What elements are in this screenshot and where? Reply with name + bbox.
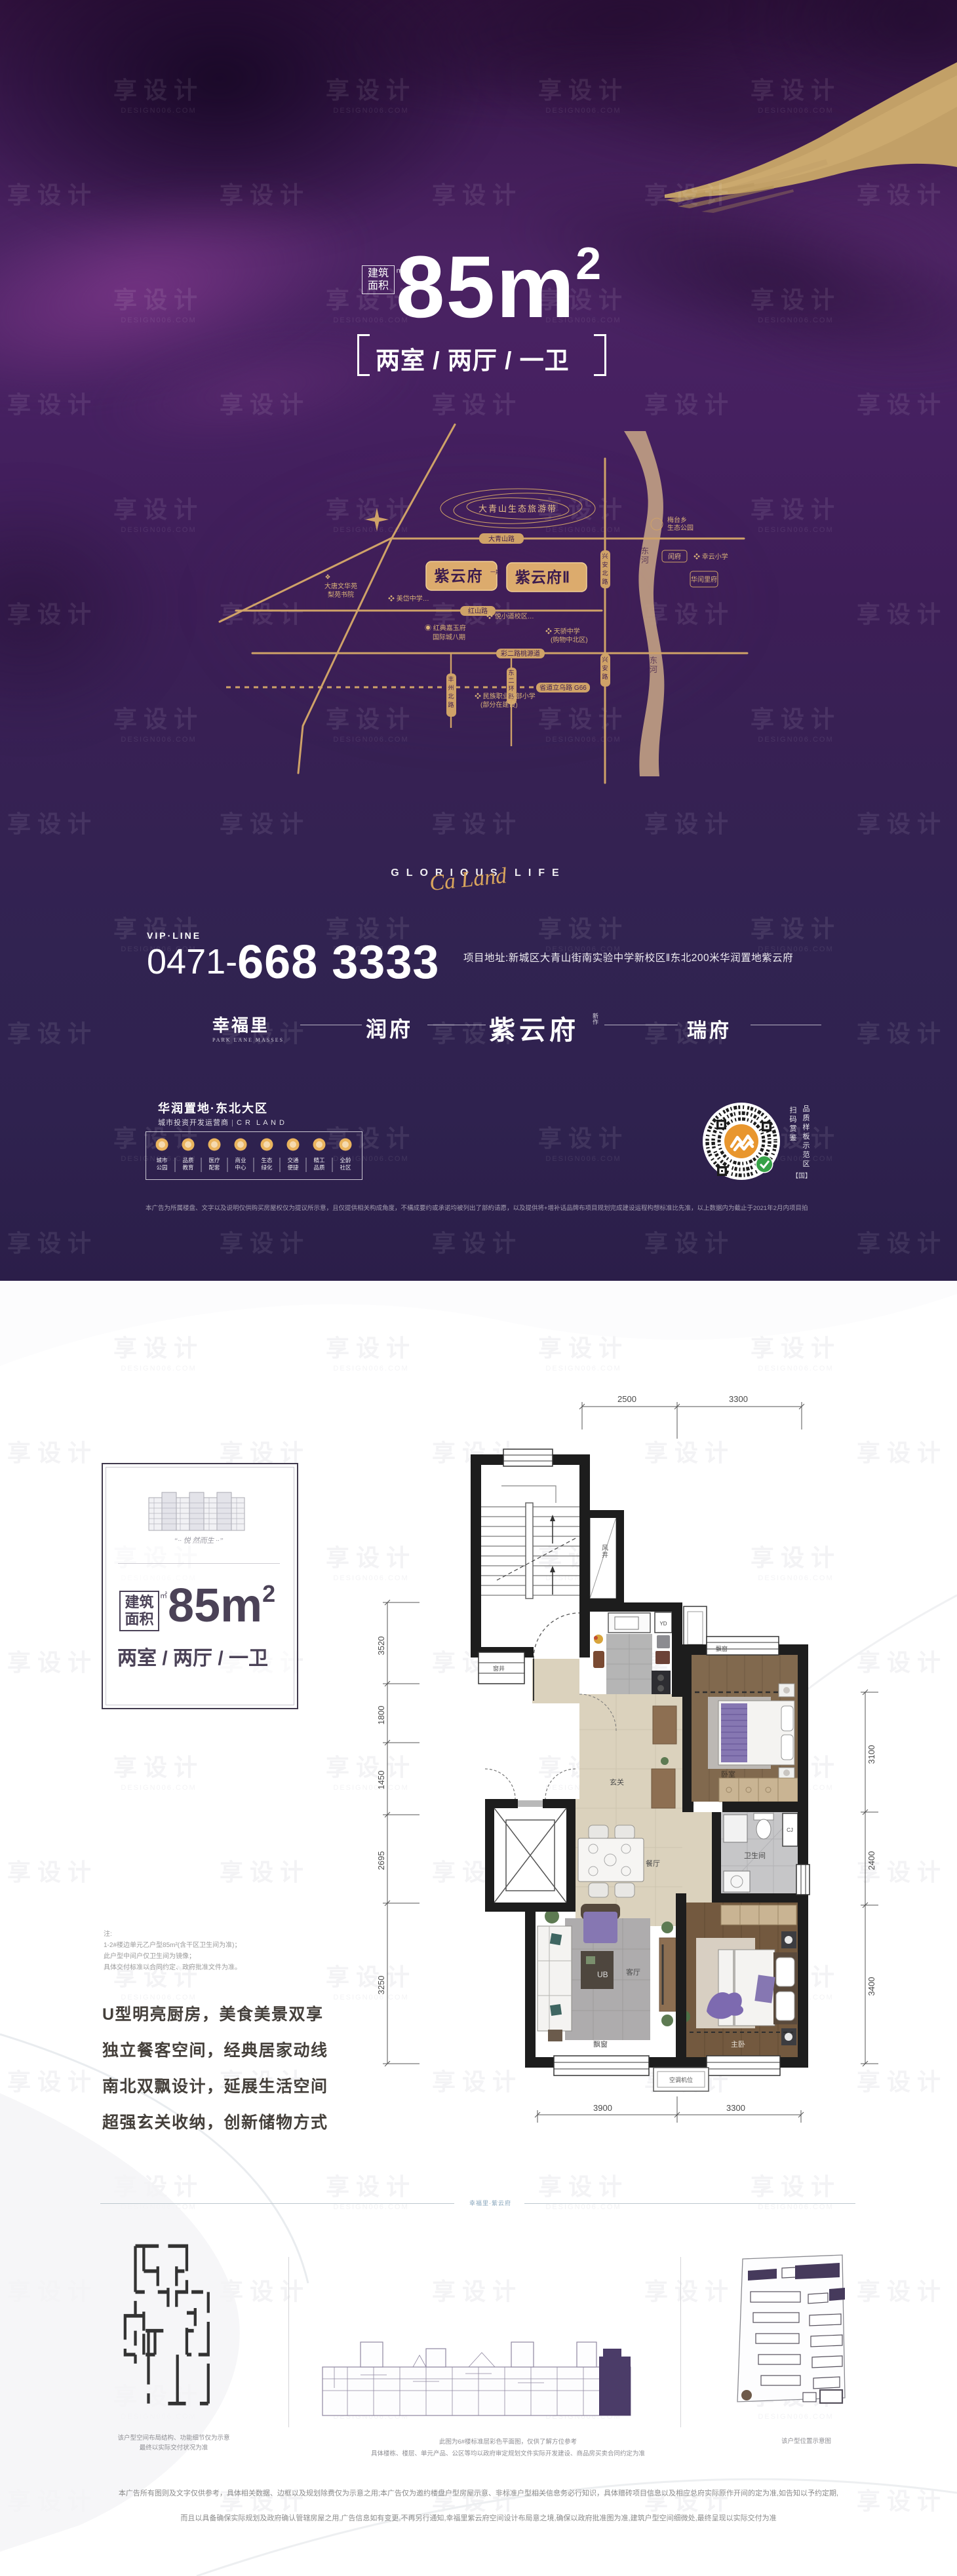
svg-text:❖ 天骄中学: ❖ 天骄中学 [545,627,580,635]
svg-text:彩二路桃源道: 彩二路桃源道 [501,649,540,658]
svg-text:大青山路: 大青山路 [488,535,515,543]
svg-text:3520: 3520 [376,1637,386,1656]
svg-text:中心: 中心 [235,1164,246,1171]
svg-text:国际城八期: 国际城八期 [433,634,465,641]
svg-text:YD: YD [659,1621,667,1627]
svg-text:窗井: 窗井 [493,1665,505,1672]
svg-text:2400: 2400 [867,1851,876,1870]
svg-text:3250: 3250 [376,1976,386,1995]
svg-text:大唐文华苑: 大唐文华苑 [324,582,357,590]
svg-text:1800: 1800 [376,1706,386,1725]
svg-text:CJ: CJ [787,1827,793,1833]
svg-text:2695: 2695 [376,1851,386,1870]
svg-text:❖ 幸云小学: ❖ 幸云小学 [693,552,728,561]
svg-text:生态: 生态 [261,1157,273,1164]
svg-text:交通: 交通 [287,1157,299,1164]
svg-text:3400: 3400 [867,1977,876,1996]
svg-text:东河: 东河 [650,656,657,674]
svg-text:飘窗: 飘窗 [716,1645,728,1652]
svg-text:梨苑书院: 梨苑书院 [328,590,354,599]
svg-text:3100: 3100 [867,1745,876,1764]
svg-text:1450: 1450 [376,1771,386,1790]
svg-text:空调机位: 空调机位 [669,2076,693,2083]
svg-text:餐厅: 餐厅 [646,1859,660,1868]
svg-text:全龄: 全龄 [340,1157,351,1164]
svg-text:品质: 品质 [313,1164,325,1171]
svg-text:闰府: 闰府 [668,552,681,561]
svg-text:紫云府: 紫云府 [435,567,484,584]
svg-text:❖: ❖ [325,574,331,581]
svg-text:(部分在建设): (部分在建设) [480,700,518,709]
svg-text:社区: 社区 [340,1164,351,1171]
svg-text:紫云府Ⅱ: 紫云府Ⅱ [515,569,570,586]
svg-text:卧室: 卧室 [721,1770,735,1779]
svg-text:便捷: 便捷 [287,1164,299,1171]
svg-text:东河: 东河 [641,546,649,565]
svg-text:◉ 红典嘉玉府: ◉ 红典嘉玉府 [425,624,466,632]
svg-text:红山路: 红山路 [468,607,488,615]
svg-text:3900: 3900 [593,2103,612,2113]
svg-text:医疗: 医疗 [208,1157,220,1164]
svg-text:品质: 品质 [182,1157,194,1164]
svg-text:2500: 2500 [617,1394,636,1404]
svg-text:生态公园: 生态公园 [667,523,693,532]
svg-text:❖ 美岱中学…: ❖ 美岱中学… [388,594,429,603]
svg-text:城市: 城市 [156,1157,168,1164]
svg-text:主卧: 主卧 [731,2040,745,2049]
svg-text:UB: UB [597,1970,608,1979]
svg-text:(购物中北区): (购物中北区) [551,635,588,644]
svg-text:商业: 商业 [235,1157,246,1164]
svg-text:客厅: 客厅 [626,1967,640,1977]
svg-text:卫生间: 卫生间 [744,1851,766,1860]
svg-text:风井: 风井 [602,1544,608,1559]
svg-text:玄关: 玄关 [610,1777,624,1787]
svg-text:教育: 教育 [182,1164,193,1171]
svg-text:精工: 精工 [313,1157,325,1164]
svg-text:绿化: 绿化 [261,1164,273,1171]
svg-text:兴安路: 兴安路 [602,656,608,680]
svg-text:❖ 民族职业北部小学: ❖ 民族职业北部小学 [475,692,536,700]
svg-text:梅台乡: 梅台乡 [667,516,687,524]
svg-text:3300: 3300 [729,1394,748,1404]
svg-text:飘窗: 飘窗 [593,2039,608,2049]
svg-text:大青山生态旅游带: 大青山生态旅游带 [478,504,557,514]
svg-text:公园: 公园 [156,1164,167,1171]
svg-text:❖ 悦小道校区…: ❖ 悦小道校区… [486,612,534,620]
svg-text:配套: 配套 [208,1164,220,1171]
svg-text:华闰里府: 华闰里府 [691,575,717,584]
svg-text:省道立乌路 G66: 省道立乌路 G66 [539,683,587,692]
svg-text:一期: 一期 [490,569,501,575]
svg-text:3300: 3300 [726,2103,745,2113]
